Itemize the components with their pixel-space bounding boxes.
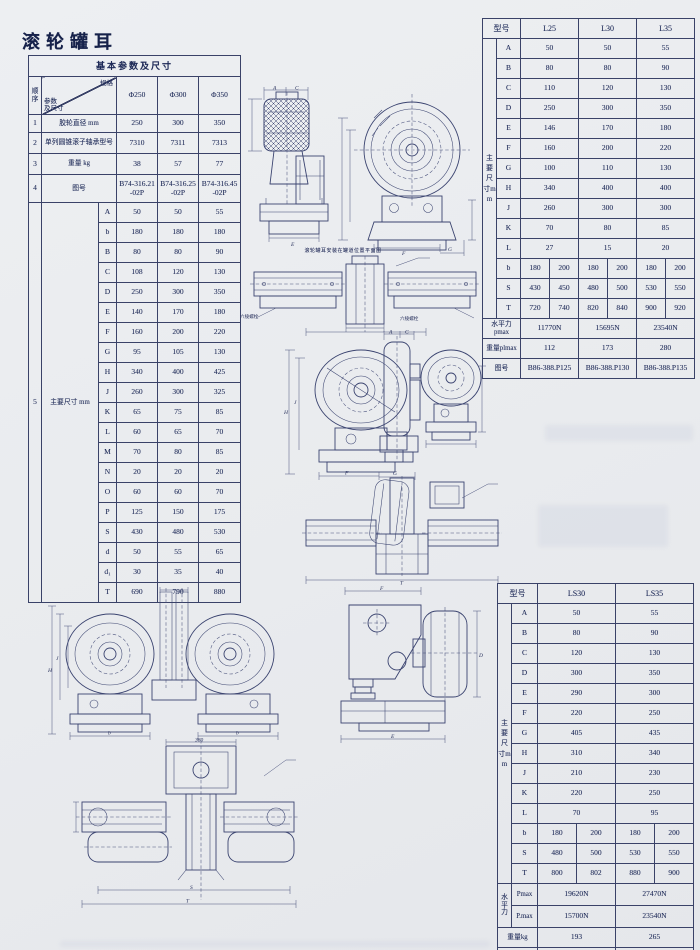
value-cell: 250 bbox=[117, 283, 158, 303]
footer-label: 水平力pmax bbox=[483, 319, 521, 339]
table-row: C110120130 bbox=[483, 79, 695, 99]
value-cell: 430 bbox=[117, 523, 158, 543]
row-seq: 2 bbox=[29, 133, 42, 154]
value-cell: 193 bbox=[538, 928, 616, 948]
table-row: D300350 bbox=[498, 664, 694, 684]
dim-letter: L bbox=[512, 804, 538, 824]
value-cell: 15 bbox=[579, 239, 637, 259]
table-row: L271520 bbox=[483, 239, 695, 259]
value-cell: 27 bbox=[521, 239, 579, 259]
dim-letter: T bbox=[497, 299, 521, 319]
value-cell: 250 bbox=[616, 784, 694, 804]
dim-letter: B bbox=[497, 59, 521, 79]
value-cell: 220 bbox=[637, 139, 695, 159]
value-cell: 350 bbox=[199, 115, 241, 133]
table-row: 顺序 参数 及尺寸 规格 Φ250 Φ300 Φ350 bbox=[29, 77, 241, 115]
bolt-label-right: 六棱螺栓 bbox=[400, 316, 418, 322]
dim-number: 380 bbox=[194, 738, 204, 744]
value-cell: B74-316.21 -02P bbox=[117, 175, 158, 203]
table-row: J210230 bbox=[498, 764, 694, 784]
value-cell: 400 bbox=[579, 179, 637, 199]
dim-letter: C bbox=[497, 79, 521, 99]
dim-letter: C bbox=[99, 263, 117, 283]
value-cell: 80 bbox=[158, 243, 199, 263]
value-cell: 425 bbox=[199, 363, 241, 383]
dim-letter: b bbox=[512, 824, 538, 844]
value-cell: 840 bbox=[608, 299, 637, 319]
table-row: 图号B86-388.P125B86-388.P130B86-388.P135 bbox=[483, 359, 695, 379]
value-cell: 50 bbox=[117, 203, 158, 223]
force-label: 水平力 bbox=[498, 884, 512, 928]
dim-letter: H bbox=[283, 410, 289, 416]
value-cell: 480 bbox=[538, 844, 577, 864]
value-cell: 480 bbox=[579, 279, 608, 299]
value-cell: 300 bbox=[637, 199, 695, 219]
value-cell: 550 bbox=[655, 844, 694, 864]
dim-letter: d bbox=[99, 543, 117, 563]
dim-letter: F bbox=[512, 704, 538, 724]
value-cell: 65 bbox=[199, 543, 241, 563]
dim-letter: F bbox=[379, 586, 384, 592]
table-row: G100110130 bbox=[483, 159, 695, 179]
value-cell: 125 bbox=[117, 503, 158, 523]
param-label: 参数 及尺寸 bbox=[44, 98, 64, 112]
value-cell: 65 bbox=[158, 423, 199, 443]
model-name: LS30 bbox=[538, 584, 616, 604]
value-cell: 77 bbox=[199, 154, 241, 175]
value-cell: 173 bbox=[579, 339, 637, 359]
value-cell: 740 bbox=[550, 299, 579, 319]
table-row: H340400400 bbox=[483, 179, 695, 199]
value-cell: 80 bbox=[538, 624, 616, 644]
model-name: LS35 bbox=[616, 584, 694, 604]
value-cell: 180 bbox=[538, 824, 577, 844]
dim-letter: J bbox=[294, 400, 297, 406]
dim-letter: M bbox=[99, 443, 117, 463]
dim-letter: E bbox=[497, 119, 521, 139]
value-cell: 50 bbox=[579, 39, 637, 59]
models-header-label: 型号 bbox=[498, 584, 538, 604]
dim-letter: S bbox=[190, 885, 193, 891]
spec-header: Φ350 bbox=[199, 77, 241, 115]
row-label: 胶轮直径 mm bbox=[42, 115, 117, 133]
value-cell: 430 bbox=[521, 279, 550, 299]
value-cell: 70 bbox=[117, 443, 158, 463]
value-cell: 920 bbox=[666, 299, 695, 319]
value-cell: 180 bbox=[158, 223, 199, 243]
table-row: 5主要尺寸 mmA505055 bbox=[29, 203, 241, 223]
value-cell: 180 bbox=[637, 259, 666, 279]
value-cell: 220 bbox=[538, 784, 616, 804]
dim-letter: G bbox=[512, 724, 538, 744]
value-cell: 80 bbox=[521, 59, 579, 79]
dim-letter: d₁ bbox=[99, 563, 117, 583]
value-cell: 250 bbox=[616, 704, 694, 724]
drawing-plan-view-top bbox=[246, 256, 484, 336]
footer-label: 图号 bbox=[483, 359, 521, 379]
dim-letter: F bbox=[497, 139, 521, 159]
value-cell: 80 bbox=[579, 59, 637, 79]
dim-letter: A bbox=[99, 203, 117, 223]
value-cell: 7310 bbox=[117, 133, 158, 154]
value-cell: 70 bbox=[199, 483, 241, 503]
value-cell: 55 bbox=[158, 543, 199, 563]
value-cell: 146 bbox=[521, 119, 579, 139]
value-cell: 170 bbox=[579, 119, 637, 139]
dim-letter: E bbox=[512, 684, 538, 704]
spec-header: Φ250 bbox=[117, 77, 158, 115]
value-cell: 55 bbox=[616, 604, 694, 624]
value-cell: 180 bbox=[199, 303, 241, 323]
side-label: 主要尺寸mm bbox=[483, 39, 497, 319]
value-cell: 550 bbox=[666, 279, 695, 299]
value-cell: 120 bbox=[158, 263, 199, 283]
value-cell: 180 bbox=[199, 223, 241, 243]
table-row: B808090 bbox=[483, 59, 695, 79]
value-cell: 90 bbox=[199, 243, 241, 263]
value-cell: 340 bbox=[521, 179, 579, 199]
value-cell: 530 bbox=[199, 523, 241, 543]
value-cell: 130 bbox=[616, 644, 694, 664]
value-cell: 250 bbox=[117, 115, 158, 133]
value-cell: 57 bbox=[158, 154, 199, 175]
value-cell: 80 bbox=[579, 219, 637, 239]
model-name: L35 bbox=[637, 19, 695, 39]
value-cell: 500 bbox=[608, 279, 637, 299]
dim-letter: A bbox=[512, 604, 538, 624]
value-cell: 350 bbox=[199, 283, 241, 303]
value-cell: 290 bbox=[538, 684, 616, 704]
value-cell: 23540N bbox=[637, 319, 695, 339]
value-cell: 220 bbox=[199, 323, 241, 343]
value-cell: 340 bbox=[117, 363, 158, 383]
value-cell: 50 bbox=[158, 203, 199, 223]
basic-parameters-table: 基本参数及尺寸 顺序 参数 及尺寸 规格 Φ250 Φ300 Φ350 1胶轮直… bbox=[28, 55, 241, 603]
dim-letter: K bbox=[512, 784, 538, 804]
force-sub-label: P.max bbox=[512, 906, 538, 928]
row-seq: 1 bbox=[29, 115, 42, 133]
value-cell: 70 bbox=[521, 219, 579, 239]
page-title: 滚轮罐耳 bbox=[22, 28, 118, 54]
value-cell: 160 bbox=[521, 139, 579, 159]
value-cell: 220 bbox=[538, 704, 616, 724]
value-cell: 325 bbox=[199, 383, 241, 403]
value-cell: 27470N bbox=[616, 884, 694, 906]
value-cell: 20 bbox=[199, 463, 241, 483]
value-cell: B74-316.45 -02P bbox=[199, 175, 241, 203]
row-seq: 3 bbox=[29, 154, 42, 175]
value-cell: B74-316.25 -02P bbox=[158, 175, 199, 203]
force-sub-label: Pmax bbox=[512, 884, 538, 906]
seq-header: 顺序 bbox=[29, 77, 42, 115]
table-row: 型号LS30LS35 bbox=[498, 584, 694, 604]
value-cell: 7313 bbox=[199, 133, 241, 154]
value-cell: 120 bbox=[579, 79, 637, 99]
table-row: 1胶轮直径 mm250300350 bbox=[29, 115, 241, 133]
value-cell: 60 bbox=[117, 423, 158, 443]
table-row: F220250 bbox=[498, 704, 694, 724]
drawing-plan-view-middle: T bbox=[302, 476, 502, 586]
value-cell: 150 bbox=[158, 503, 199, 523]
dim-letter: J bbox=[497, 199, 521, 219]
value-cell: 530 bbox=[616, 844, 655, 864]
value-cell: 200 bbox=[577, 824, 616, 844]
value-cell: B86-388.P130 bbox=[579, 359, 637, 379]
value-cell: 130 bbox=[637, 159, 695, 179]
value-cell: 260 bbox=[117, 383, 158, 403]
diagonal-header-cell: 参数 及尺寸 规格 bbox=[42, 77, 117, 115]
value-cell: 480 bbox=[158, 523, 199, 543]
value-cell: 900 bbox=[637, 299, 666, 319]
spec-header: Φ300 bbox=[158, 77, 199, 115]
row-seq: 5 bbox=[29, 203, 42, 603]
table-row: K220250 bbox=[498, 784, 694, 804]
value-cell: 50 bbox=[538, 604, 616, 624]
dim-letter: D bbox=[512, 664, 538, 684]
l-series-dimensions-table: 型号L25L30L35主要尺寸mmA505055B808090C11012013… bbox=[482, 18, 695, 379]
value-cell: 450 bbox=[550, 279, 579, 299]
table-row: G405435 bbox=[498, 724, 694, 744]
table-row: 型号L25L30L35 bbox=[483, 19, 695, 39]
value-cell: 200 bbox=[158, 323, 199, 343]
dim-letter: L bbox=[99, 423, 117, 443]
value-cell: 350 bbox=[616, 664, 694, 684]
value-cell: 35 bbox=[158, 563, 199, 583]
dim-letter: b bbox=[108, 731, 111, 737]
table-title: 基本参数及尺寸 bbox=[29, 56, 241, 77]
drawing-side-view-top: A C E bbox=[246, 86, 338, 258]
value-cell: B86-388.P125 bbox=[521, 359, 579, 379]
footer-label: 重量kg bbox=[498, 928, 538, 948]
table-row: b180200180200180200 bbox=[483, 259, 695, 279]
table-row: 2单列圆锥滚子轴承型号731073117313 bbox=[29, 133, 241, 154]
value-cell: 7311 bbox=[158, 133, 199, 154]
value-cell: 50 bbox=[521, 39, 579, 59]
ls-series-dimensions-table: 型号LS30LS35主要尺寸mmA5055B8090C120130D300350… bbox=[497, 583, 694, 950]
value-cell: 230 bbox=[616, 764, 694, 784]
scanned-catalog-page: 滚轮罐耳 基本参数及尺寸 顺序 参数 及尺寸 规格 Φ250 Φ300 Φ350… bbox=[0, 0, 700, 950]
dim-letter: F bbox=[99, 323, 117, 343]
dim-letter: S bbox=[497, 279, 521, 299]
value-cell: 880 bbox=[616, 864, 655, 884]
bolt-label-left: 六棱螺栓 bbox=[240, 314, 258, 320]
value-cell: 65 bbox=[117, 403, 158, 423]
table-row: E290300 bbox=[498, 684, 694, 704]
dim-letter: P bbox=[99, 503, 117, 523]
value-cell: 180 bbox=[117, 223, 158, 243]
value-cell: 85 bbox=[637, 219, 695, 239]
dim-letter: A bbox=[497, 39, 521, 59]
dim-letter: b bbox=[497, 259, 521, 279]
dim-letter: G bbox=[497, 159, 521, 179]
value-cell: 50 bbox=[117, 543, 158, 563]
value-cell: 15695N bbox=[579, 319, 637, 339]
dim-letter: N bbox=[99, 463, 117, 483]
value-cell: 802 bbox=[577, 864, 616, 884]
dim-letter: K bbox=[497, 219, 521, 239]
value-cell: 300 bbox=[158, 283, 199, 303]
value-cell: 95 bbox=[117, 343, 158, 363]
value-cell: 110 bbox=[579, 159, 637, 179]
value-cell: 20 bbox=[158, 463, 199, 483]
value-cell: 120 bbox=[538, 644, 616, 664]
table-row: J260300300 bbox=[483, 199, 695, 219]
dim-letter: E bbox=[390, 734, 395, 740]
value-cell: 60 bbox=[117, 483, 158, 503]
drawing-front-view-lower-left: H J b b bbox=[48, 588, 288, 740]
value-cell: 100 bbox=[521, 159, 579, 179]
dim-letter: H bbox=[99, 363, 117, 383]
value-cell: 70 bbox=[199, 423, 241, 443]
value-cell: 300 bbox=[616, 684, 694, 704]
value-cell: 720 bbox=[521, 299, 550, 319]
value-cell: 85 bbox=[199, 403, 241, 423]
dim-letter: D bbox=[497, 99, 521, 119]
table-row: 主要尺寸mmA505055 bbox=[483, 39, 695, 59]
value-cell: 200 bbox=[608, 259, 637, 279]
scan-artifact bbox=[60, 941, 490, 947]
scan-artifact bbox=[545, 425, 693, 441]
drawing-side-view-middle: A C bbox=[376, 330, 422, 482]
value-cell: 200 bbox=[666, 259, 695, 279]
dim-letter: S bbox=[99, 523, 117, 543]
model-name: L25 bbox=[521, 19, 579, 39]
value-cell: 130 bbox=[199, 343, 241, 363]
dim-letter: J bbox=[56, 656, 59, 662]
value-cell: 300 bbox=[579, 199, 637, 219]
value-cell: 108 bbox=[117, 263, 158, 283]
value-cell: 15700N bbox=[538, 906, 616, 928]
table-row: 水平力pmax11770N15695N23540N bbox=[483, 319, 695, 339]
value-cell: B86-388.P135 bbox=[637, 359, 695, 379]
value-cell: 90 bbox=[616, 624, 694, 644]
value-cell: 500 bbox=[577, 844, 616, 864]
dim-letter: D bbox=[478, 653, 483, 659]
value-cell: 160 bbox=[117, 323, 158, 343]
value-cell: 110 bbox=[521, 79, 579, 99]
value-cell: 310 bbox=[538, 744, 616, 764]
dim-letter: J bbox=[512, 764, 538, 784]
value-cell: 300 bbox=[538, 664, 616, 684]
table-row: L7095 bbox=[498, 804, 694, 824]
value-cell: 400 bbox=[637, 179, 695, 199]
value-cell: 11770N bbox=[521, 319, 579, 339]
model-name: L30 bbox=[579, 19, 637, 39]
value-cell: 80 bbox=[117, 243, 158, 263]
value-cell: 38 bbox=[117, 154, 158, 175]
row-label: 主要尺寸 mm bbox=[42, 203, 99, 603]
value-cell: 300 bbox=[158, 383, 199, 403]
value-cell: 900 bbox=[655, 864, 694, 884]
dim-letter: J bbox=[99, 383, 117, 403]
table-row: 3重量 kg385777 bbox=[29, 154, 241, 175]
drawing-front-view-middle-right bbox=[418, 338, 486, 476]
table-row: b180200180200 bbox=[498, 824, 694, 844]
dim-letter: D bbox=[99, 283, 117, 303]
dim-letter: A bbox=[388, 330, 393, 336]
value-cell: 180 bbox=[616, 824, 655, 844]
drawing-plan-view-lower-left: 380 S T bbox=[74, 740, 298, 912]
drawing-side-view-lower-right: F D E bbox=[325, 583, 485, 745]
dim-letter: O bbox=[99, 483, 117, 503]
value-cell: 405 bbox=[538, 724, 616, 744]
value-cell: 55 bbox=[199, 203, 241, 223]
value-cell: 530 bbox=[637, 279, 666, 299]
dim-letter: b bbox=[99, 223, 117, 243]
dim-letter: T bbox=[512, 864, 538, 884]
footer-label: 重量plmax bbox=[483, 339, 521, 359]
value-cell: 105 bbox=[158, 343, 199, 363]
table-row: 重量plmax112173280 bbox=[483, 339, 695, 359]
dim-letter: K bbox=[99, 403, 117, 423]
dim-letter: L bbox=[497, 239, 521, 259]
value-cell: 175 bbox=[199, 503, 241, 523]
drawing-caption: 滚轮罐耳安装在罐道位置平面图 bbox=[258, 247, 428, 254]
value-cell: 112 bbox=[521, 339, 579, 359]
dim-letter: C bbox=[405, 330, 409, 336]
table-row: S480500530550 bbox=[498, 844, 694, 864]
value-cell: 20 bbox=[637, 239, 695, 259]
table-row: H310340 bbox=[498, 744, 694, 764]
value-cell: 350 bbox=[637, 99, 695, 119]
table-row: 重量kg193265 bbox=[498, 928, 694, 948]
value-cell: 180 bbox=[521, 259, 550, 279]
row-label: 单列圆锥滚子轴承型号 bbox=[42, 133, 117, 154]
dim-letter: H bbox=[497, 179, 521, 199]
value-cell: 70 bbox=[538, 804, 616, 824]
dim-letter: b bbox=[236, 731, 239, 737]
value-cell: 280 bbox=[637, 339, 695, 359]
side-label: 主要尺寸mm bbox=[498, 604, 512, 884]
value-cell: 435 bbox=[616, 724, 694, 744]
dim-letter: G bbox=[99, 343, 117, 363]
dim-letter: A bbox=[272, 86, 277, 92]
table-row: E146170180 bbox=[483, 119, 695, 139]
value-cell: 200 bbox=[655, 824, 694, 844]
value-cell: 130 bbox=[199, 263, 241, 283]
table-row: 基本参数及尺寸 bbox=[29, 56, 241, 77]
table-row: D250300350 bbox=[483, 99, 695, 119]
value-cell: 95 bbox=[616, 804, 694, 824]
value-cell: 140 bbox=[117, 303, 158, 323]
table-row: S430450480500530550 bbox=[483, 279, 695, 299]
value-cell: 265 bbox=[616, 928, 694, 948]
table-row: T800802880900 bbox=[498, 864, 694, 884]
value-cell: 300 bbox=[158, 115, 199, 133]
value-cell: 250 bbox=[521, 99, 579, 119]
value-cell: 19620N bbox=[538, 884, 616, 906]
models-header-label: 型号 bbox=[483, 19, 521, 39]
value-cell: 90 bbox=[637, 59, 695, 79]
spec-label: 规格 bbox=[100, 80, 113, 87]
value-cell: 85 bbox=[199, 443, 241, 463]
dim-letter: C bbox=[512, 644, 538, 664]
value-cell: 170 bbox=[158, 303, 199, 323]
value-cell: 300 bbox=[579, 99, 637, 119]
dim-letter: G bbox=[448, 247, 452, 253]
dim-letter: C bbox=[295, 86, 299, 92]
dim-letter: H bbox=[512, 744, 538, 764]
value-cell: 130 bbox=[637, 79, 695, 99]
value-cell: 180 bbox=[579, 259, 608, 279]
value-cell: 200 bbox=[550, 259, 579, 279]
table-row: P.max15700N23540N bbox=[498, 906, 694, 928]
value-cell: 75 bbox=[158, 403, 199, 423]
table-row: 水平力Pmax19620N27470N bbox=[498, 884, 694, 906]
table-row: K708085 bbox=[483, 219, 695, 239]
dim-letter: T bbox=[186, 899, 190, 905]
dim-letter: B bbox=[512, 624, 538, 644]
